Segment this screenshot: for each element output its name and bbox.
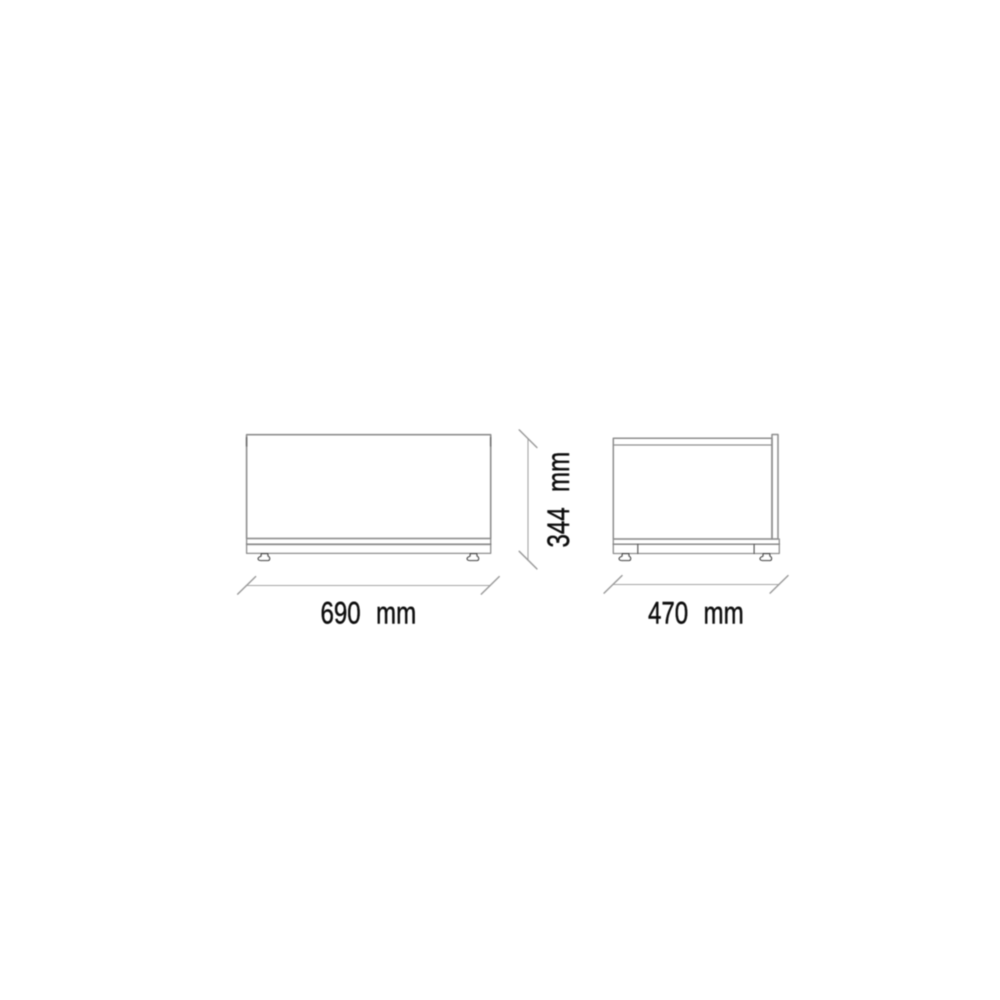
svg-text:344 mm: 344 mm: [541, 452, 576, 548]
svg-text:690 mm: 690 mm: [320, 596, 416, 631]
svg-text:470 mm: 470 mm: [648, 596, 744, 631]
